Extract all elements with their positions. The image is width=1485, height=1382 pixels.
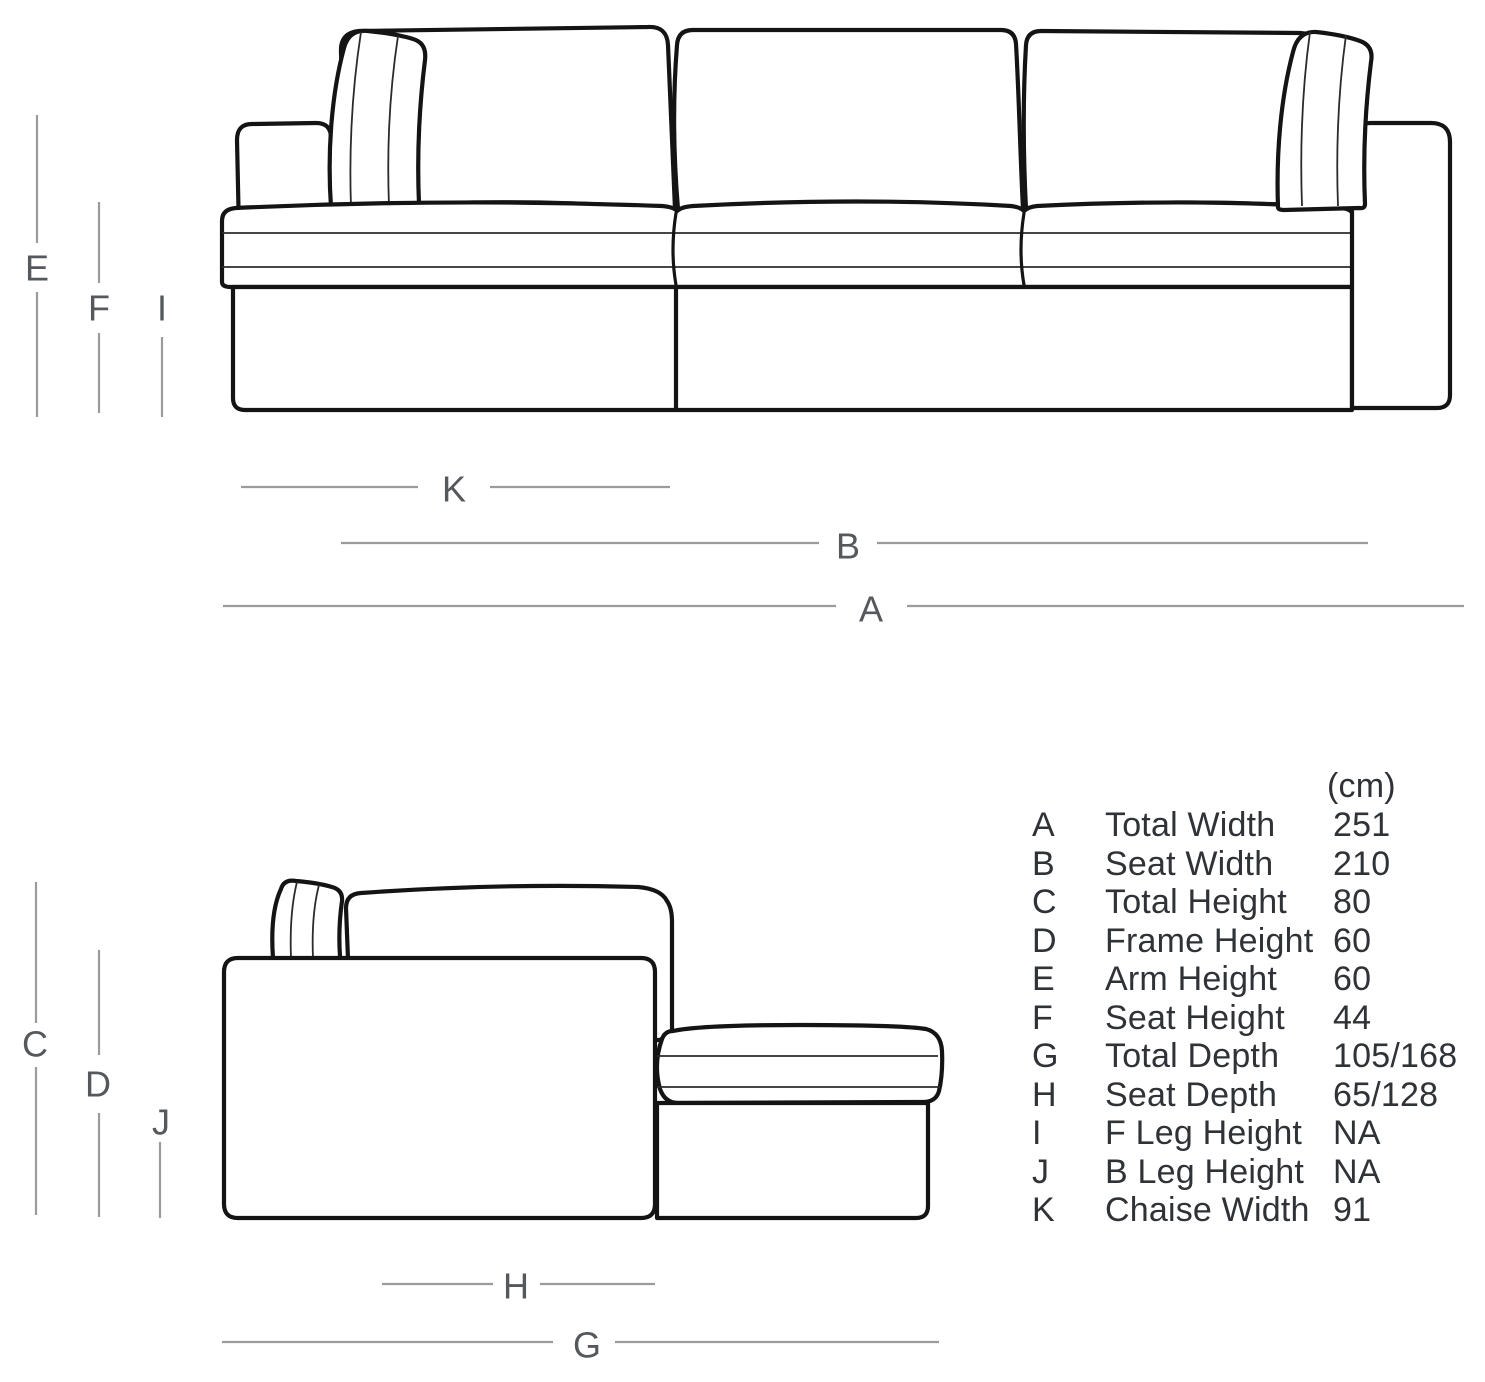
dim-name: Total Depth [1105,1037,1333,1076]
table-row: C Total Height 80 [1032,883,1482,922]
table-row: H Seat Depth 65/128 [1032,1076,1482,1115]
dim-name: Seat Depth [1105,1076,1333,1115]
dim-label-A: A [859,589,883,630]
dim-letter: A [1032,806,1105,845]
dim-label-I: I [157,288,167,329]
front-back-cushion-middle [674,30,1023,209]
dim-label-J: J [152,1102,170,1143]
dim-label-K: K [442,469,466,510]
table-row: I F Leg Height NA [1032,1114,1482,1153]
table-row: J B Leg Height NA [1032,1153,1482,1192]
dim-letter: B [1032,845,1105,884]
front-base [233,287,1352,410]
dimension-table: (cm) A Total Width 251 B Seat Width 210 … [1032,766,1482,1230]
unit-header: (cm) [1327,766,1482,806]
dim-letter: E [1032,960,1105,999]
dim-letter: H [1032,1076,1105,1115]
dim-value: NA [1333,1153,1482,1192]
dim-letter: I [1032,1114,1105,1153]
table-row: D Frame Height 60 [1032,922,1482,961]
front-right-bolster [1278,32,1372,210]
dim-value: 65/128 [1333,1076,1482,1115]
dim-label-D: D [85,1064,111,1105]
dim-value: 105/168 [1333,1037,1482,1076]
dim-value: 91 [1333,1191,1482,1230]
side-bolster [272,881,342,961]
dim-name: Arm Height [1105,960,1333,999]
dim-name: F Leg Height [1105,1114,1333,1153]
dim-letter: D [1032,922,1105,961]
table-row: F Seat Height 44 [1032,999,1482,1038]
dim-name: Total Width [1105,806,1333,845]
dim-letter: J [1032,1153,1105,1192]
dim-label-E: E [25,248,49,289]
dim-name: Total Height [1105,883,1333,922]
dim-label-B: B [836,526,860,567]
dim-name: Seat Height [1105,999,1333,1038]
table-row: G Total Depth 105/168 [1032,1037,1482,1076]
dim-letter: F [1032,999,1105,1038]
dim-value: 210 [1333,845,1482,884]
table-row: B Seat Width 210 [1032,845,1482,884]
dim-value: NA [1333,1114,1482,1153]
dim-value: 251 [1333,806,1482,845]
dimension-diagram-page: E F I K B A C D J H [0,0,1485,1382]
dim-label-H: H [503,1266,529,1307]
front-right-arm [1352,123,1450,408]
dim-value: 44 [1333,999,1482,1038]
dim-letter: G [1032,1037,1105,1076]
front-left-bolster [330,31,426,210]
side-chaise-base [657,1103,928,1218]
dim-letter: C [1032,883,1105,922]
dim-label-G: G [573,1325,601,1366]
dim-label-C: C [22,1024,48,1065]
sofa-side-view [224,881,942,1218]
side-frame-panel [224,958,655,1218]
dim-value: 60 [1333,922,1482,961]
dim-label-F: F [88,288,110,329]
dim-value: 80 [1333,883,1482,922]
dim-value: 60 [1333,960,1482,999]
side-chaise-cushion [657,1025,942,1103]
sofa-front-view [222,27,1450,410]
table-row: K Chaise Width 91 [1032,1191,1482,1230]
table-row: A Total Width 251 [1032,806,1482,845]
table-row: E Arm Height 60 [1032,960,1482,999]
dim-name: Seat Width [1105,845,1333,884]
dim-name: Frame Height [1105,922,1333,961]
dim-name: Chaise Width [1105,1191,1333,1230]
dim-letter: K [1032,1191,1105,1230]
dim-name: B Leg Height [1105,1153,1333,1192]
front-seat-band [222,202,1353,288]
